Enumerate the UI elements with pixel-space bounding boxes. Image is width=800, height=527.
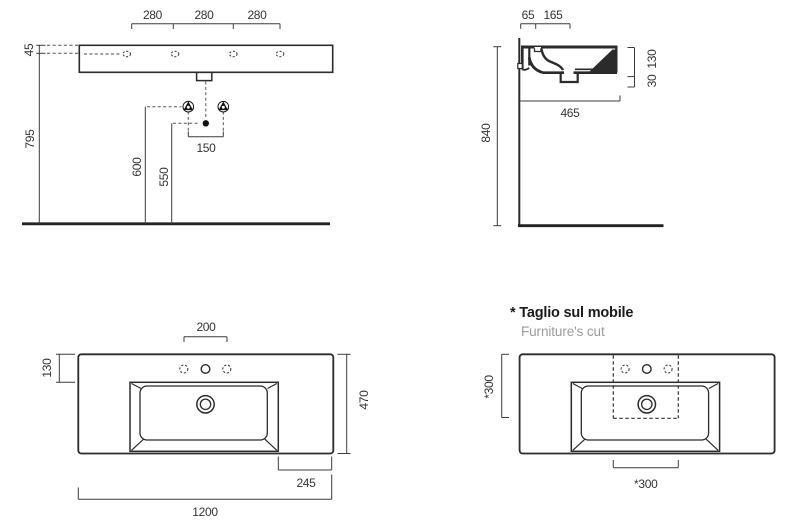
top-dim-130-label: 130 [41,358,53,377]
side-dim-65-label: 65 [522,9,535,21]
furniture-cut-note-italian: * Taglio sul mobile [510,306,633,321]
side-dim-465-label: 465 [560,107,579,119]
side-dim-65-165-lines [521,24,570,29]
side-dim-840-label: 840 [480,123,492,142]
top-view-outline [78,354,333,453]
basin-trap-stub [197,72,212,80]
side-dim-465-lines [519,96,620,102]
basin-section-profile [518,46,618,83]
front-dim-550-label: 550 [158,167,170,186]
side-dim-840-lines [493,47,501,226]
side-dim-130-label: 130 [646,49,658,68]
top-dim-245-label: 245 [296,477,315,489]
cut-view-tap-holes [621,365,672,374]
top-view-bowl-rim [130,382,278,451]
front-dim-150-lines [188,132,223,137]
top-view-linework [56,337,351,500]
side-dim-165-label: 165 [543,9,562,21]
front-tap-hole-marks [84,51,284,56]
top-dim-130-lines [56,354,75,382]
front-dim-600-550-lines [145,107,171,224]
top-dim-470-lines [338,354,351,453]
front-view-linework [22,24,333,224]
top-dim-245-lines [278,457,331,471]
cut-dim-300-vertical-lines [502,354,509,417]
front-dim-600-label: 600 [131,157,143,176]
technical-drawing-canvas [0,0,800,527]
side-dim-30-130-lines [628,48,635,88]
front-dim-280-label-2: 280 [194,9,213,21]
cut-view-drain-circle [638,396,655,413]
top-dim-200-label: 200 [196,321,215,333]
side-view-linework [493,24,663,226]
side-dim-30-label: 30 [646,75,658,88]
front-dim-280-lines [132,24,280,29]
front-dim-45-label: 45 [23,43,35,56]
basin-front-outline [79,45,332,72]
cut-dim-300-horizontal-lines [613,460,678,468]
front-dim-795-label: 795 [24,129,36,148]
cut-dim-300-horizontal-label: *300 [634,478,658,490]
front-dim-280-label-3: 280 [247,9,266,21]
front-dim-280-label-1: 280 [143,9,162,21]
technical-drawing-page: 280 280 280 45 795 600 550 150 65 165 84… [0,0,800,527]
drain-point-symbol [203,120,209,126]
furniture-cut-view-linework [502,354,775,467]
front-dim-45-795-lines [36,45,78,224]
top-dim-1200-label: 1200 [192,506,218,518]
top-dim-200-lines [184,337,227,342]
top-view-drain-circle [197,396,214,413]
top-dim-1200-lines [78,475,331,500]
top-view-tap-holes [180,365,231,374]
cut-dim-300-vertical-label: *300 [483,375,495,399]
top-dim-470-label: 470 [358,390,370,409]
furniture-cut-note-english: Furniture's cut [521,325,605,339]
front-dim-150-label: 150 [196,142,215,154]
cut-view-outline [520,354,775,453]
cut-view-bowl-rim [571,382,719,451]
